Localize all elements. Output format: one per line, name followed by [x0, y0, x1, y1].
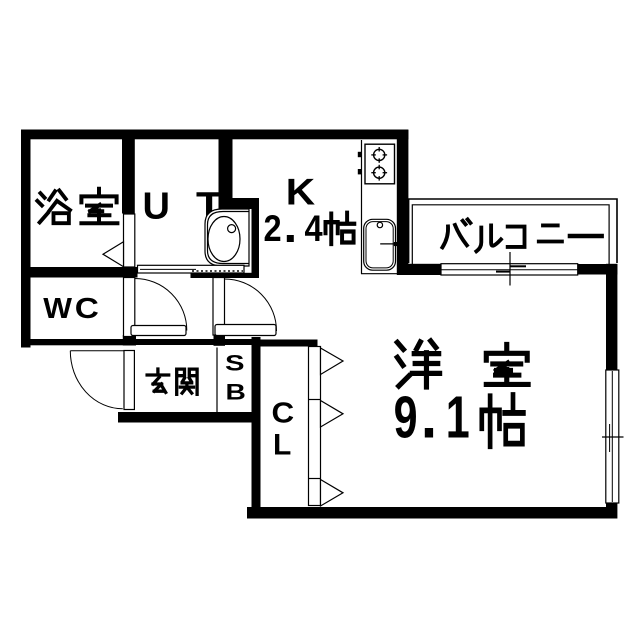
- svg-text:9: 9: [394, 384, 418, 450]
- svg-text:L: L: [273, 429, 291, 462]
- svg-text:S: S: [225, 350, 245, 376]
- svg-text:1: 1: [446, 384, 470, 450]
- svg-text:C: C: [272, 397, 295, 429]
- svg-text:K: K: [286, 172, 315, 213]
- svg-text:C: C: [75, 292, 99, 324]
- svg-text:B: B: [226, 380, 246, 405]
- svg-text:4: 4: [305, 208, 324, 249]
- svg-text:2: 2: [264, 208, 282, 249]
- svg-text:U: U: [143, 186, 170, 228]
- svg-text:W: W: [43, 293, 73, 325]
